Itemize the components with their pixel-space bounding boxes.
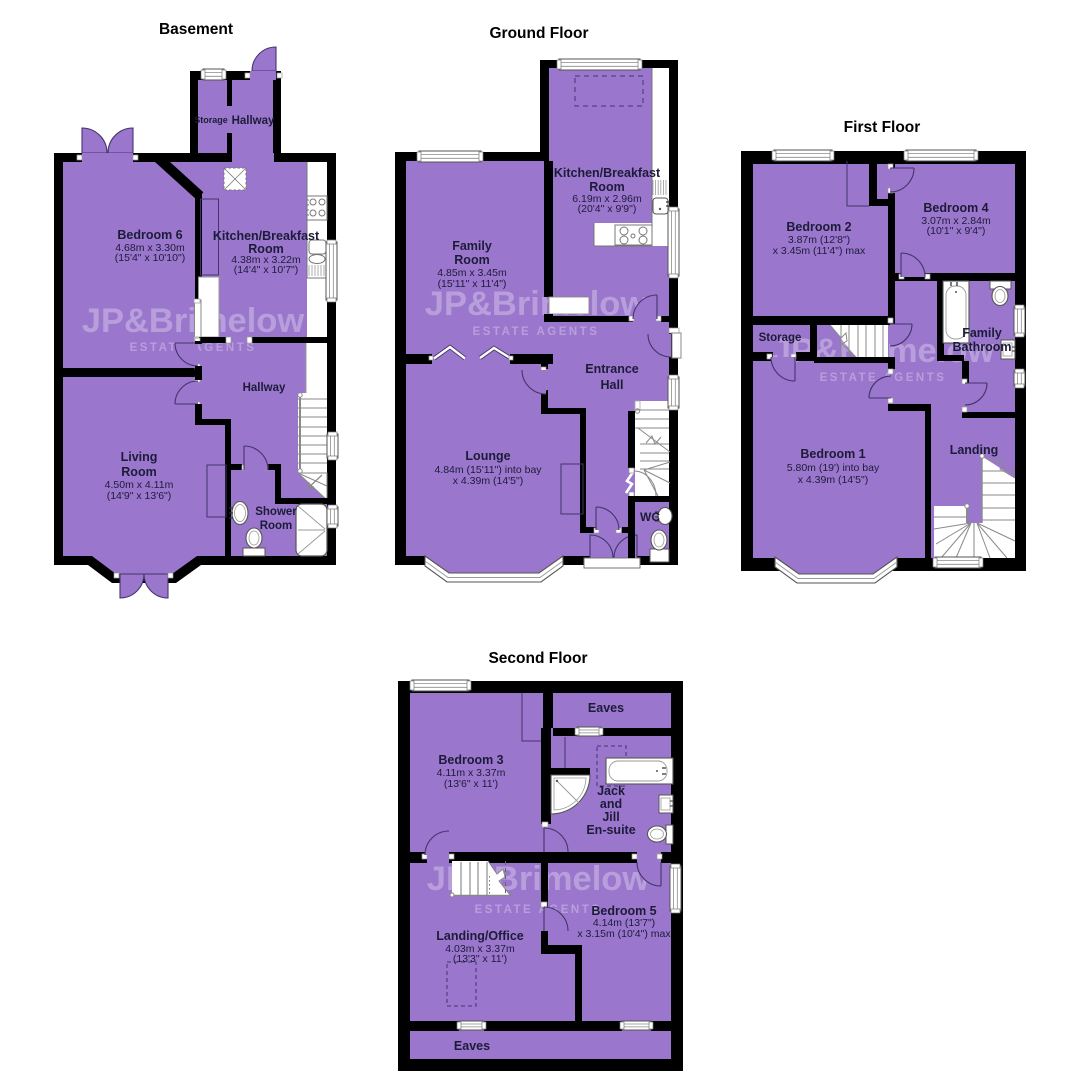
- svg-text:Living: Living: [121, 450, 158, 464]
- svg-text:and: and: [600, 797, 622, 811]
- svg-text:Bedroom 5: Bedroom 5: [591, 904, 656, 918]
- svg-text:Landing: Landing: [950, 443, 999, 457]
- svg-text:(15'11" x 11'4"): (15'11" x 11'4"): [438, 278, 507, 290]
- svg-text:Bedroom 4: Bedroom 4: [923, 201, 988, 215]
- svg-text:Hall: Hall: [601, 378, 624, 392]
- svg-text:Basement: Basement: [159, 21, 233, 38]
- svg-text:Jack: Jack: [597, 784, 625, 798]
- svg-text:(13'3" x 11'): (13'3" x 11'): [453, 953, 507, 965]
- svg-text:Ground Floor: Ground Floor: [489, 25, 588, 42]
- svg-text:(14'4" x 10'7"): (14'4" x 10'7"): [234, 264, 299, 276]
- svg-text:5.80m (19') into bay: 5.80m (19') into bay: [787, 462, 880, 474]
- svg-text:Shower: Shower: [255, 506, 297, 518]
- svg-text:WC: WC: [640, 510, 660, 524]
- svg-text:Second Floor: Second Floor: [488, 650, 587, 667]
- svg-text:Lounge: Lounge: [465, 449, 510, 463]
- svg-text:Room: Room: [454, 253, 489, 267]
- svg-text:JP&Brimelow: JP&Brimelow: [82, 302, 305, 340]
- svg-text:Room: Room: [260, 520, 293, 532]
- svg-text:En-suite: En-suite: [586, 823, 635, 837]
- svg-text:(14'9" x 13'6"): (14'9" x 13'6"): [107, 490, 172, 502]
- svg-text:First Floor: First Floor: [844, 119, 921, 136]
- svg-text:Entrance: Entrance: [585, 362, 639, 376]
- svg-text:Room: Room: [589, 180, 624, 194]
- svg-text:x 3.45m (11'4") max: x 3.45m (11'4") max: [773, 245, 866, 257]
- svg-text:x 4.39m (14'5"): x 4.39m (14'5"): [798, 474, 869, 486]
- svg-text:Hallway: Hallway: [232, 115, 275, 127]
- svg-text:Family: Family: [962, 326, 1002, 340]
- svg-text:(10'1" x 9'4"): (10'1" x 9'4"): [927, 225, 986, 237]
- svg-text:Storage: Storage: [194, 115, 228, 125]
- svg-text:Room: Room: [121, 465, 156, 479]
- svg-text:Jill: Jill: [602, 810, 619, 824]
- svg-text:Kitchen/Breakfast: Kitchen/Breakfast: [554, 166, 661, 180]
- svg-text:Storage: Storage: [759, 332, 802, 344]
- svg-text:Eaves: Eaves: [454, 1039, 490, 1053]
- svg-text:Bathroom: Bathroom: [952, 340, 1011, 354]
- svg-text:Bedroom 3: Bedroom 3: [438, 753, 503, 767]
- svg-text:x 3.15m (10'4") max: x 3.15m (10'4") max: [577, 928, 671, 940]
- svg-text:Bedroom 6: Bedroom 6: [117, 228, 182, 242]
- svg-text:Eaves: Eaves: [588, 701, 624, 715]
- svg-text:ESTATE AGENTS: ESTATE AGENTS: [473, 326, 600, 338]
- svg-text:Hallway: Hallway: [243, 382, 286, 394]
- svg-text:Kitchen/Breakfast: Kitchen/Breakfast: [213, 229, 320, 243]
- svg-text:(15'4" x 10'10"): (15'4" x 10'10"): [115, 252, 185, 264]
- svg-text:Landing/Office: Landing/Office: [436, 929, 524, 943]
- svg-text:Family: Family: [452, 239, 492, 253]
- svg-text:(20'4" x 9'9"): (20'4" x 9'9"): [578, 203, 637, 215]
- svg-text:Bedroom 1: Bedroom 1: [800, 447, 865, 461]
- svg-text:x 4.39m (14'5"): x 4.39m (14'5"): [453, 475, 524, 487]
- svg-text:Bedroom 2: Bedroom 2: [786, 220, 851, 234]
- svg-text:ESTATE AGENTS: ESTATE AGENTS: [475, 904, 602, 916]
- svg-text:(13'6" x 11'): (13'6" x 11'): [444, 778, 498, 790]
